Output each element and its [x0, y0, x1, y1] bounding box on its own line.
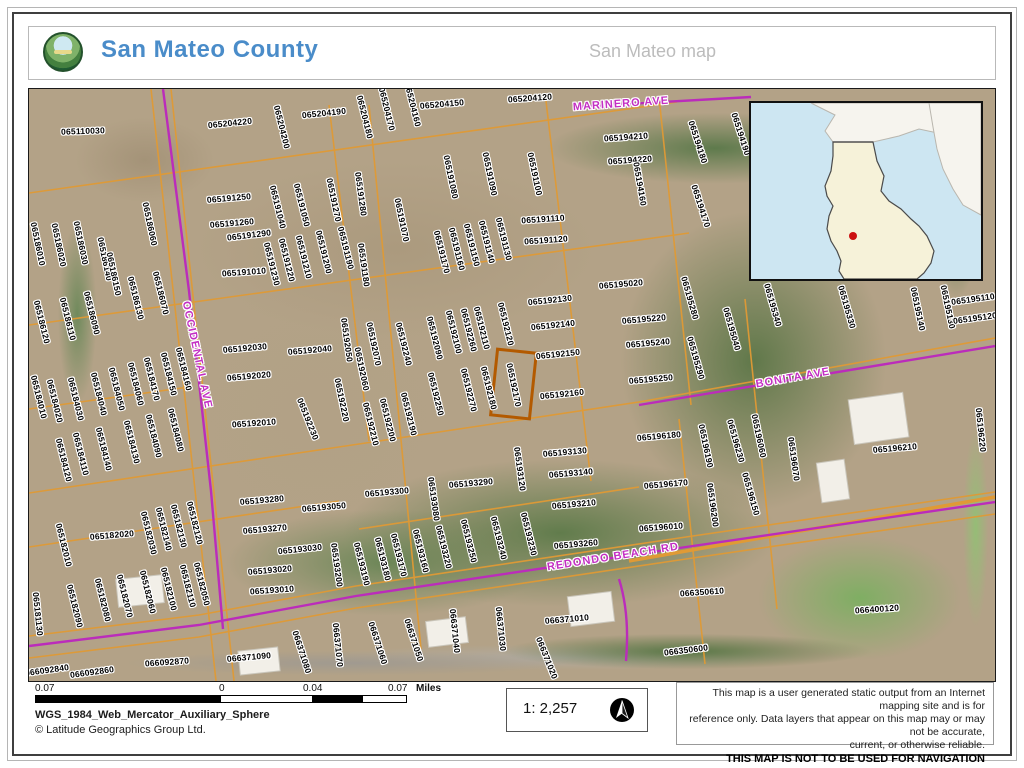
parcel-label: 065192120 [496, 301, 516, 346]
parcel-label: 065186130 [126, 275, 146, 320]
parcel-label: 065196230 [725, 418, 747, 463]
parcel-label: 065193170 [389, 532, 409, 577]
parcel-label: 065191070 [392, 197, 411, 242]
parcel-label: 065194170 [689, 183, 712, 228]
parcel-label: 065192210 [361, 401, 381, 446]
parcel-label: 065191080 [441, 154, 460, 199]
parcel-label: 066092860 [69, 664, 114, 680]
parcel-label: 065191260 [209, 216, 254, 230]
map-viewport: 0651100300652042200652042000652041900652… [28, 88, 996, 682]
parcel-label: 066371090 [226, 650, 271, 664]
parcel-label: 065194220 [608, 153, 653, 166]
parcel-label: 065204150 [419, 97, 464, 111]
parcel-label: 065193290 [448, 476, 493, 490]
scale-bar-label: 0.07 [35, 683, 54, 694]
parcel-label: 066092840 [28, 662, 70, 678]
parcel-label: 065186020 [49, 222, 68, 267]
parcel-label: 065196220 [974, 407, 989, 452]
parcel-label: 065182090 [65, 583, 85, 628]
page-title: San Mateo County [101, 36, 318, 64]
disclaimer-line: reference only. Data layers that appear … [681, 713, 985, 739]
disclaimer-line: current, or otherwise reliable. [681, 739, 985, 752]
parcel-label: 066371080 [290, 629, 313, 674]
parcel-label: 065182060 [138, 569, 158, 614]
parcel-label: 065193230 [519, 511, 539, 556]
parcel-label: 065184090 [144, 413, 164, 458]
parcel-label: 065194160 [631, 161, 649, 206]
scale-bar [362, 695, 407, 703]
copyright-label: © Latitude Geographics Group Ltd. [35, 724, 206, 736]
north-arrow-icon [609, 697, 635, 723]
parcel-label: 065192230 [295, 397, 321, 442]
parcel-label: 065186010 [28, 221, 47, 266]
parcel-label: 065196170 [643, 477, 688, 491]
parcel-label: 065195340 [762, 282, 784, 327]
inset-county-shape [751, 103, 981, 279]
parcel-label: 065195020 [598, 277, 643, 291]
parcel-label: 065182070 [115, 573, 135, 618]
parcel-label: 066371050 [402, 617, 425, 662]
parcel-label: 066371030 [494, 606, 509, 651]
street-label: BONITA AVE [755, 366, 831, 391]
scale-bar [220, 695, 313, 703]
navigation-warning: THIS MAP IS NOT TO BE USED FOR NAVIGATIO… [681, 752, 985, 767]
building-footprints [116, 392, 909, 675]
parcel-label: 065196200 [705, 482, 721, 527]
parcel-label: 065193050 [301, 500, 346, 514]
projection-label: WGS_1984_Web_Mercator_Auxiliary_Sphere [35, 709, 270, 721]
parcel-label: 065182010 [54, 522, 74, 567]
scale-ratio-box: 1: 2,257 [506, 688, 648, 732]
parcel-label: 065204190 [301, 106, 346, 121]
parcel-label: 065195290 [685, 335, 707, 380]
parcel-label: 066092870 [145, 655, 190, 668]
parcel-label: 065191100 [526, 151, 545, 196]
parcel-label: 065191090 [480, 151, 499, 196]
parcel-label: 065184110 [71, 431, 91, 476]
parcel-label: 065191180 [356, 243, 372, 288]
scale-bar-label: 0.07 [388, 683, 407, 694]
parcel-label: 065192070 [364, 321, 383, 366]
parcel-label: 065182020 [89, 528, 134, 542]
parcel-label: 065192130 [527, 293, 572, 308]
parcel-label: 065195240 [625, 336, 670, 350]
parcel-label: 065191250 [206, 191, 251, 205]
parcel-label: 065195140 [908, 286, 927, 331]
parcel-label: 065196070 [786, 436, 802, 481]
parcel-label: 065196210 [872, 441, 917, 455]
parcel-label: 065193010 [250, 583, 295, 596]
parcel-label: 065191130 [494, 216, 514, 261]
parcel-label: 065192030 [222, 341, 267, 355]
parcel-label: 065195330 [836, 284, 858, 329]
map-title: San Mateo map [589, 41, 716, 62]
parcel-label: 066371020 [534, 636, 560, 681]
parcel-label: 065193120 [512, 446, 528, 491]
parcel-label: 065191010 [222, 265, 267, 278]
parcel-label: 065192150 [535, 347, 580, 362]
parcel-label: 065204180 [355, 94, 375, 139]
parcel-label: 065192220 [332, 377, 351, 422]
parcel-label: 065193250 [459, 518, 479, 563]
parcel-label: 065181130 [31, 592, 46, 637]
parcel-label: 065184050 [107, 366, 127, 411]
street-label: MARINERO AVE [573, 95, 670, 114]
parcel-label: 065184130 [122, 419, 142, 464]
parcel-label: 065192200 [378, 397, 398, 442]
parcel-label: 066371040 [448, 608, 463, 653]
inset-map [749, 101, 983, 281]
parcel-label: 066350610 [680, 585, 725, 598]
parcel-label: 065193080 [426, 476, 442, 521]
parcel-label: 065195220 [621, 312, 666, 326]
parcel-label: 065182120 [185, 500, 205, 545]
parcel-label: 066371060 [366, 620, 389, 665]
parcel-label: 065204120 [508, 91, 553, 104]
parcel-label: 065191270 [324, 177, 343, 222]
header: San Mateo County San Mateo map [28, 26, 996, 80]
parcel-label: 066371070 [331, 622, 346, 667]
scale-bar [35, 695, 220, 703]
parcel-label: 065192190 [399, 391, 419, 436]
parcel-label: 065193270 [242, 522, 287, 536]
parcel-label: 065193260 [553, 537, 598, 551]
parcel-label: 065192250 [426, 371, 446, 416]
parcel-label: 065195250 [628, 372, 673, 386]
parcel-label: 065191290 [226, 227, 271, 242]
disclaimer-line: This map is a user generated static outp… [681, 687, 985, 713]
parcel-label: 065184030 [66, 376, 86, 421]
parcel-label: 065193300 [364, 485, 409, 499]
parcel-label: 065193130 [542, 445, 587, 459]
parcel-label: 065193190 [352, 541, 372, 586]
parcel-label: 065192010 [232, 416, 277, 429]
parcel-label: 065191120 [524, 233, 568, 246]
disclaimer: This map is a user generated static outp… [676, 682, 994, 745]
parcel-label: 065193220 [434, 524, 454, 569]
parcel-label: 065186030 [71, 220, 90, 265]
parcel-label: 065196180 [636, 429, 681, 443]
parcel-label: 065182100 [159, 566, 179, 611]
parcel-label: 065195040 [721, 306, 743, 351]
parcel-label: 065191200 [314, 229, 334, 274]
parcel-label: 065195280 [679, 275, 701, 320]
inset-location-dot [849, 232, 857, 240]
parcel-label: 065193240 [489, 515, 509, 560]
parcel-label: 065191050 [292, 182, 312, 227]
parcel-label: 065191110 [521, 212, 565, 225]
parcel-label: 065110030 [61, 125, 105, 137]
parcel-label: 065204170 [377, 88, 397, 132]
parcel-label: 065186090 [82, 290, 102, 335]
parcel-label: 065191210 [294, 234, 314, 279]
parcel-label: 065193200 [329, 542, 345, 587]
parcel-label: 065193210 [551, 497, 596, 511]
parcel-label: 065194180 [686, 119, 709, 164]
parcel-label: 065192020 [226, 369, 271, 383]
parcel-label: 065193140 [548, 466, 593, 480]
scale-bar-unit: Miles [416, 683, 441, 694]
parcel-label: 066350600 [663, 642, 708, 657]
parcel-label: 065195110 [951, 291, 996, 307]
parcel-label: 065186120 [32, 299, 52, 344]
parcel-label: 065191190 [336, 225, 356, 270]
parcel-label: 065192050 [339, 317, 355, 362]
scale-bar-label: 0 [219, 683, 225, 694]
scale-ratio: 1: 2,257 [523, 700, 577, 717]
parcel-label: 065184040 [89, 371, 109, 416]
parcel-label: 065192160 [539, 387, 584, 402]
parcel-label: 065186110 [58, 296, 78, 341]
parcel-label: 065195120 [952, 310, 996, 326]
parcel-label: 066371010 [544, 612, 589, 626]
parcel-label: 065186060 [140, 201, 159, 246]
parcel-label: 065192090 [425, 315, 445, 360]
parcel-label: 065191040 [268, 184, 288, 229]
print-page: { "header": { "title": "San Mateo County… [0, 0, 1024, 768]
road-edge-line [629, 497, 995, 561]
parcel-label: 065196190 [696, 423, 715, 468]
parcel-label: 065184170 [142, 356, 162, 401]
parcel-label: 065192060 [352, 346, 371, 391]
parcel-label: 065192040 [287, 343, 332, 357]
county-seal-logo [43, 32, 83, 72]
parcel-label: 065193160 [411, 528, 431, 573]
parcel-label: 065192170 [504, 362, 523, 407]
parcel-label: 065204220 [207, 116, 252, 131]
parcel-label: 065184140 [94, 426, 114, 471]
parcel-label: 065192240 [394, 321, 414, 366]
parcel-label: 065192180 [479, 365, 499, 410]
parcel-label: 065184080 [166, 407, 186, 452]
parcel-label: 065196010 [639, 520, 684, 533]
parcel-label: 065194210 [604, 130, 649, 143]
scale-bar-label: 0.04 [303, 683, 322, 694]
parcel-label: 065192270 [459, 367, 479, 412]
parcel-label: 065191280 [353, 171, 369, 216]
parcel-label: 065192140 [530, 318, 575, 333]
parcel-label: 065184120 [54, 437, 74, 482]
parcel-label: 065196150 [740, 471, 762, 516]
parcel-label: 065193280 [239, 493, 284, 507]
parcel-label: 065193030 [277, 542, 322, 557]
scale-bar [313, 695, 362, 703]
parcel-label: 066400120 [855, 602, 900, 615]
parcel-label: 065193020 [247, 563, 292, 577]
parcel-label: 065182080 [93, 577, 113, 622]
parcel-label: 065196060 [749, 413, 768, 458]
parcel-label: 065186070 [151, 270, 171, 315]
parcel-label: 065204200 [272, 104, 292, 149]
